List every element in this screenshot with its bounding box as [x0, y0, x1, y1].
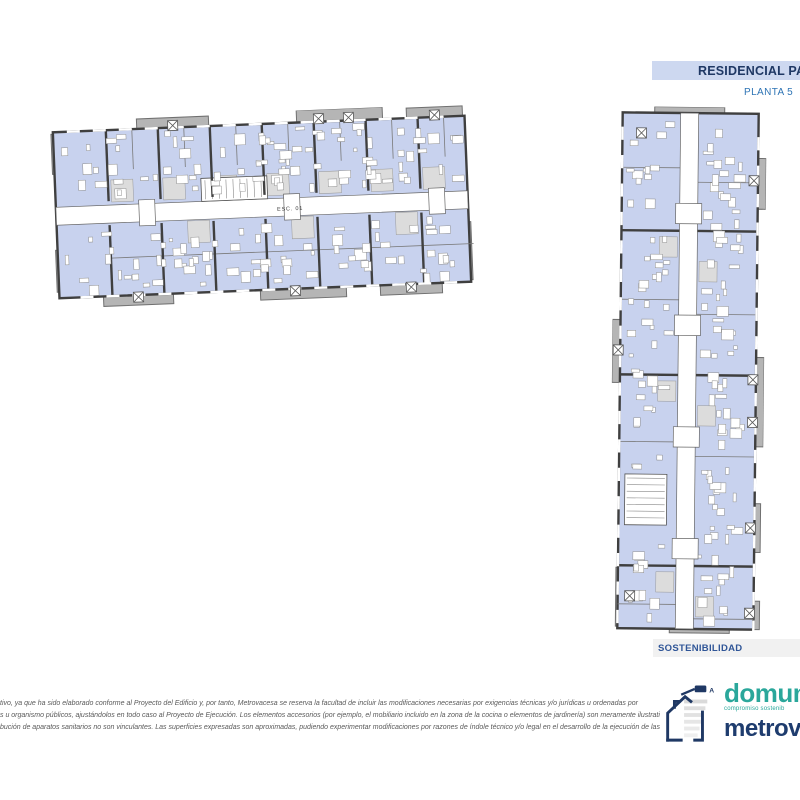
disclaimer-line-2: s u organismo públicos, ajustándolos en … — [0, 710, 660, 722]
metrovacesa-logo: metrov — [724, 715, 800, 743]
floor-plan-horizontal: ESC. 01 — [48, 104, 475, 311]
header-band: RESIDENCIAL PA — [652, 61, 800, 80]
stair-core-label: ESC. 01 — [277, 206, 303, 213]
energy-arrow — [681, 686, 706, 695]
floor-plan-vertical-svg — [609, 106, 767, 636]
floor-plan-horizontal-svg: ESC. 01 — [48, 104, 475, 311]
energy-house-icon: A — [658, 684, 716, 746]
energy-label: A — [709, 687, 714, 694]
plan-vertical-graphics — [609, 106, 766, 634]
sustainability-label: SOSTENIBILIDAD — [658, 643, 742, 654]
disclaimer-line-1: tivo, ya que ha sido elaborado conforme … — [0, 698, 660, 710]
floor-label: PLANTA 5 — [744, 87, 793, 98]
domum-logo: domum — [724, 678, 800, 709]
brochure-page: RESIDENCIAL PA PLANTA 5 ESC. 01 SOSTENIB… — [0, 0, 800, 800]
floor-plan-vertical — [609, 106, 767, 636]
brand-block: A domum compromiso sostenib metrov — [658, 680, 800, 752]
disclaimer-line-3: bución de aparatos sanitarios no son vin… — [0, 722, 660, 734]
brand-text: domum compromiso sostenib metrov — [724, 678, 800, 743]
page-title: RESIDENCIAL PA — [698, 64, 800, 78]
sustainability-band: SOSTENIBILIDAD — [653, 639, 800, 657]
plan-horizontal-graphics — [50, 104, 475, 309]
legal-disclaimer: tivo, ya que ha sido elaborado conforme … — [0, 698, 660, 734]
